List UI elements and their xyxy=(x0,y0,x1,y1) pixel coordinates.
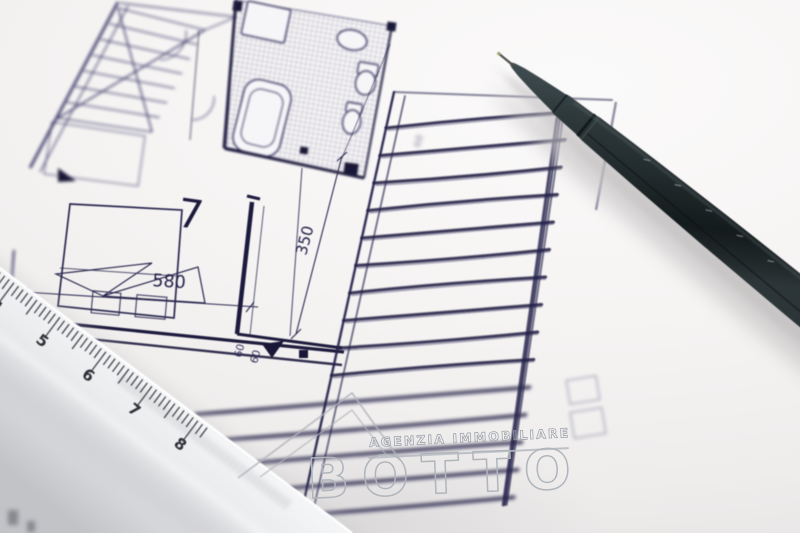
staircase-linework xyxy=(8,2,236,330)
deck-joist xyxy=(350,277,546,293)
deck-joist-stroke xyxy=(334,362,534,378)
deck-joist xyxy=(196,387,530,414)
pen-needle xyxy=(500,54,514,65)
bathroom-linework xyxy=(190,0,397,178)
deck-joist xyxy=(338,332,538,348)
deck-joist xyxy=(362,222,554,238)
dim-68-label: 68 xyxy=(412,134,426,149)
deck-joist-stroke xyxy=(198,389,530,416)
deck-right-rail xyxy=(503,118,557,505)
deck-joist-stroke xyxy=(382,142,565,158)
stair-tread xyxy=(101,39,190,59)
stair-treads xyxy=(58,8,205,132)
deck-right-rail xyxy=(507,118,563,505)
deck-joist xyxy=(380,140,565,156)
dim-580-label: 580 xyxy=(152,271,187,293)
deck-joist-stroke xyxy=(370,197,557,213)
room-number-label: 7 xyxy=(175,190,207,239)
pen-shadow xyxy=(484,66,800,404)
deck-joist-stroke xyxy=(352,279,546,295)
deck-right-rail xyxy=(505,118,560,505)
photo: 580 7 350 60 60 68 xyxy=(0,0,800,533)
deck-joist xyxy=(332,360,534,376)
stair-tread xyxy=(75,87,167,103)
stair-tread xyxy=(84,71,175,88)
deck-joist xyxy=(374,167,561,183)
deck-joist xyxy=(344,305,542,321)
deck-joist-stroke xyxy=(346,307,542,323)
dim-60-left-label: 60 xyxy=(232,343,247,359)
deck-joist xyxy=(368,195,557,211)
dim-350-label: 350 xyxy=(292,224,317,257)
dim-60-right-label: 60 xyxy=(248,349,263,365)
deck-joist-stroke xyxy=(364,224,554,240)
pen-tip-green xyxy=(497,52,500,55)
photo-canvas: 580 7 350 60 60 68 xyxy=(0,0,800,533)
deck-joist xyxy=(356,250,550,266)
